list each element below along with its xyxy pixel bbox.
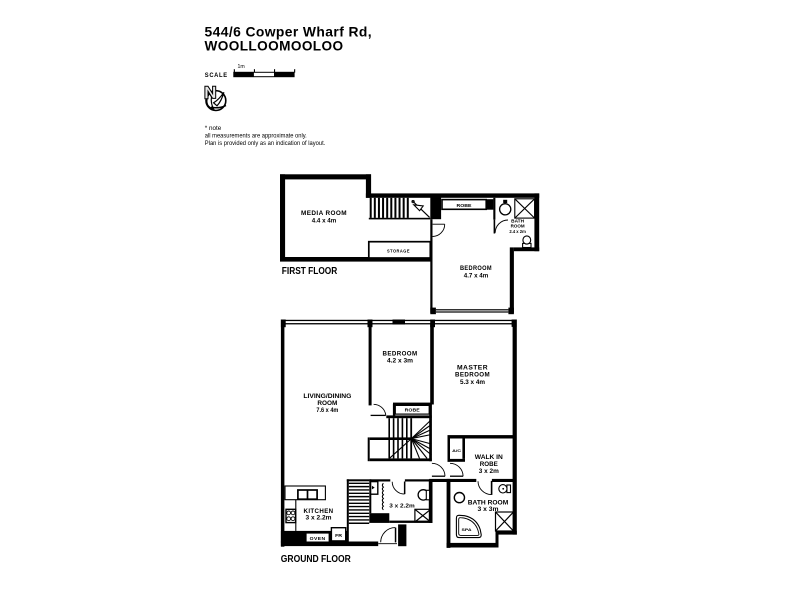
svg-text:STORAGE: STORAGE: [387, 248, 410, 254]
svg-text:ROOM: ROOM: [317, 400, 337, 407]
svg-text:4.4 x 4m: 4.4 x 4m: [312, 217, 337, 224]
svg-text:OVEN: OVEN: [310, 536, 326, 541]
svg-text:FR: FR: [335, 533, 342, 538]
svg-text:3 x 2m: 3 x 2m: [479, 468, 500, 475]
svg-text:A/C: A/C: [452, 449, 461, 453]
svg-text:4.7 x 4m: 4.7 x 4m: [464, 272, 489, 279]
svg-text:BEDROOM: BEDROOM: [460, 265, 492, 272]
svg-text:544/6 Cowper Wharf Rd,: 544/6 Cowper Wharf Rd,: [205, 25, 373, 40]
svg-text:ROBE: ROBE: [457, 203, 472, 208]
svg-text:3 x 2.2m: 3 x 2.2m: [389, 503, 414, 509]
svg-text:* note: * note: [205, 125, 222, 132]
svg-text:FIRST FLOOR: FIRST FLOOR: [282, 266, 338, 277]
svg-text:4.2 x 3m: 4.2 x 3m: [387, 358, 413, 365]
svg-text:1m: 1m: [238, 64, 245, 70]
svg-text:MASTER: MASTER: [457, 364, 488, 371]
svg-text:BEDROOM: BEDROOM: [455, 372, 490, 379]
svg-text:ROOM: ROOM: [511, 224, 525, 229]
svg-text:GROUND FLOOR: GROUND FLOOR: [281, 554, 352, 565]
svg-text:BEDROOM: BEDROOM: [383, 351, 418, 358]
svg-text:BATH: BATH: [511, 218, 525, 223]
svg-text:LIVING/DINING: LIVING/DINING: [303, 393, 351, 400]
svg-text:SCALE: SCALE: [205, 72, 228, 79]
svg-text:2.4 x 2m: 2.4 x 2m: [509, 229, 526, 234]
svg-text:3 x 2.2m: 3 x 2.2m: [306, 515, 333, 522]
svg-text:MEDIA ROOM: MEDIA ROOM: [301, 210, 347, 217]
svg-text:WALK IN: WALK IN: [475, 454, 503, 461]
svg-text:WOOLLOOMOOLOO: WOOLLOOMOOLOO: [205, 39, 344, 54]
svg-text:Plan is provided only as an in: Plan is provided only as an indication o…: [205, 140, 326, 147]
svg-text:all measurements are approxima: all measurements are approximate only.: [205, 132, 307, 139]
svg-text:5.3 x 4m: 5.3 x 4m: [460, 379, 485, 386]
svg-text:7.6 x 4m: 7.6 x 4m: [316, 407, 338, 414]
svg-text:ROBE: ROBE: [405, 408, 420, 413]
svg-text:SPA: SPA: [462, 528, 473, 532]
